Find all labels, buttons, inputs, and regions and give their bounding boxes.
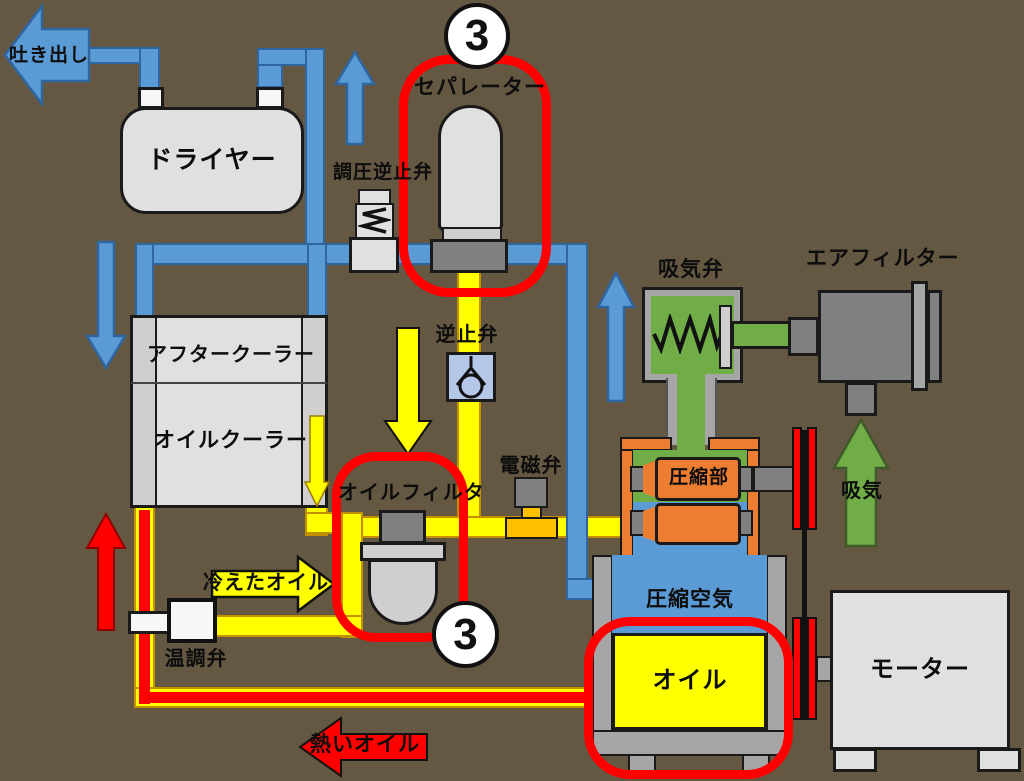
separator-label: セパレーター [414,76,546,99]
compressor-frame-left [620,437,634,557]
oil-sump-highlight-oval [584,617,793,779]
oil-filter-label: オイルフィルタ [338,482,460,504]
oil-filter-number-badge: 3 [432,601,499,668]
cooler-inlet-left [135,243,154,319]
oil-filter-number: 3 [453,610,477,660]
temp-valve-stub [128,611,172,634]
oil-down-arrow-big [383,326,433,456]
pulley-top-bar1 [792,427,802,530]
compression-unit-label: 圧縮部 [666,468,732,489]
pressure-check-valve-body [349,237,399,273]
rotor2-shaft-left [630,510,645,536]
drive-shaft [753,466,795,492]
pressure-check-valve-spring [358,206,391,236]
solenoid-valve-label: 電磁弁 [497,455,565,477]
compressed-air-label: 圧縮空気 [642,588,738,611]
hot-oil-core-bottom [139,692,601,703]
compressor-frame-top-left [620,437,672,451]
dryer-port-left [138,87,164,109]
dryer-label: ドライヤー [122,147,302,175]
pulley-bottom-bar1 [792,617,802,720]
aftercooler-label: アフタークーラー [146,344,316,366]
rotor2 [655,503,741,545]
solenoid-valve-body [514,477,548,508]
pulley-top-bar2 [807,427,817,530]
compressor-frame-right [746,437,760,557]
check-valve-label: 逆止弁 [432,324,502,346]
motor-foot-right [977,748,1021,772]
cooler-inlet-right [307,243,327,319]
air-filter-body [818,290,914,383]
air-filter-outlet [845,382,877,416]
intake-label: 吸気 [838,480,886,502]
hot-oil-up-arrow [85,512,127,632]
air-down-arrow-left [85,240,127,370]
discharge-pipe-riser [139,47,160,89]
rotor1-shaft-left [630,466,645,492]
motor-label: モーター [868,657,972,683]
solenoid-valve-base [505,517,558,539]
pressure-check-valve-label: 調圧逆止弁 [322,163,444,184]
air-filter-end-plate [911,281,928,391]
cooler-divider [131,382,327,384]
temp-valve-label: 温調弁 [160,648,232,670]
air-up-arrow-separator [334,50,376,146]
separator-number-badge: 3 [444,3,510,69]
pulley-bottom-bar2 [807,617,817,720]
air-downpipe-to-tank [566,243,588,600]
air-up-arrow-compressor [596,271,636,403]
motor-foot-left [833,748,877,772]
intake-valve-label: 吸気弁 [656,258,726,281]
dryer-port-right [256,87,284,109]
separator-number: 3 [465,11,489,61]
discharge-label: 吐き出し [8,46,90,67]
air-filter-end-cap [927,290,942,383]
hot-oil-core-vertical [139,510,150,704]
check-valve-symbol [448,354,494,400]
dryer-right-downpipe [305,48,325,265]
oil-cooler-label: オイルクーラー [152,429,310,452]
cooled-oil-label: 冷えたオイル [203,572,327,594]
intake-valve-spring [652,314,724,354]
oil-label: オイル [650,668,730,694]
hot-oil-label: 熱いオイル [310,733,420,756]
compressor-diagram: 3 3 吐き出し ドライヤー 調圧逆止弁 セパレーター 逆止弁 アフタークーラー… [0,0,1024,781]
compressor-frame-top-right [708,437,760,451]
intake-pipe [731,321,791,349]
air-filter-inlet-flange [788,317,819,356]
air-filter-label: エアフィルター [806,247,952,270]
